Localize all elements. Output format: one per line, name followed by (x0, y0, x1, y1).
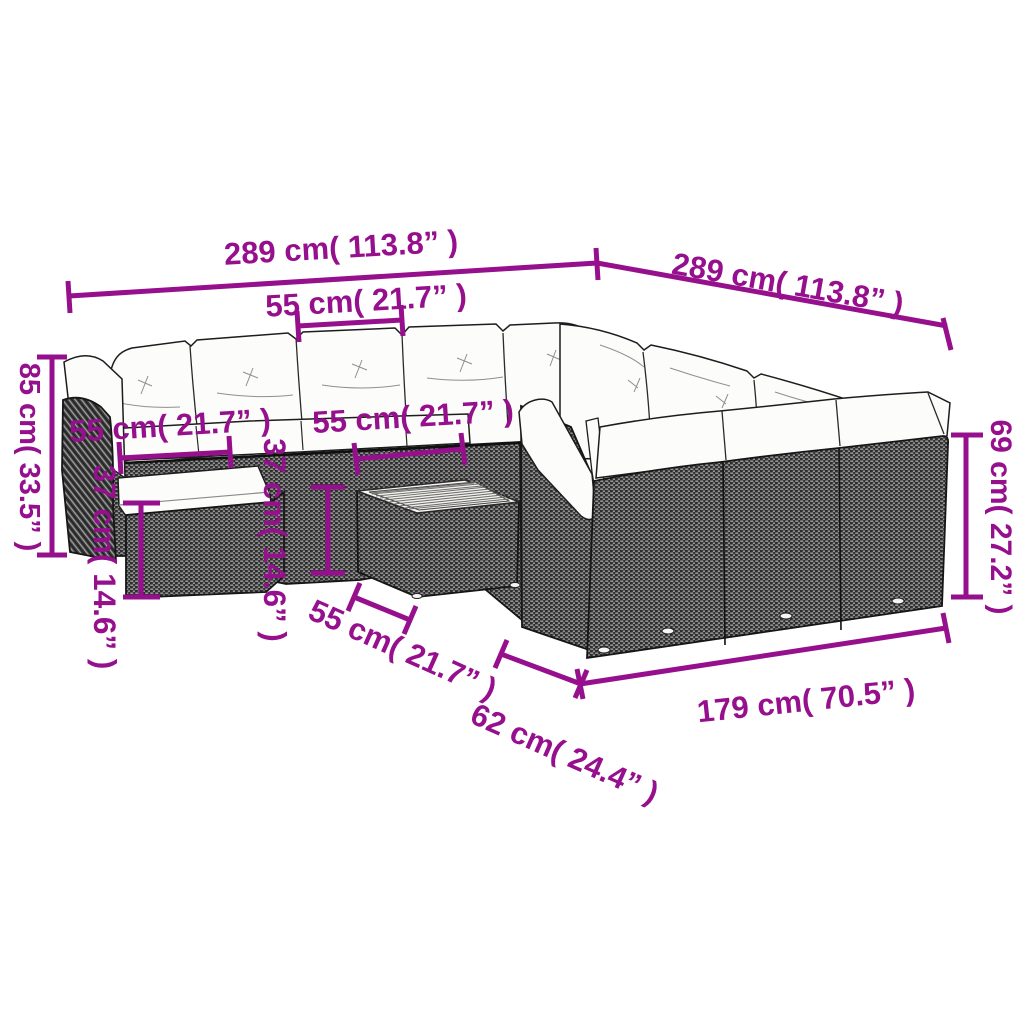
svg-text:37 cm( 14.6” ): 37 cm( 14.6” ) (87, 465, 123, 670)
svg-text:69 cm( 27.2” ): 69 cm( 27.2” ) (984, 419, 1017, 614)
svg-text:37 cm( 14.6” ): 37 cm( 14.6” ) (257, 438, 292, 642)
svg-text:85 cm( 33.5” ): 85 cm( 33.5” ) (13, 363, 45, 552)
